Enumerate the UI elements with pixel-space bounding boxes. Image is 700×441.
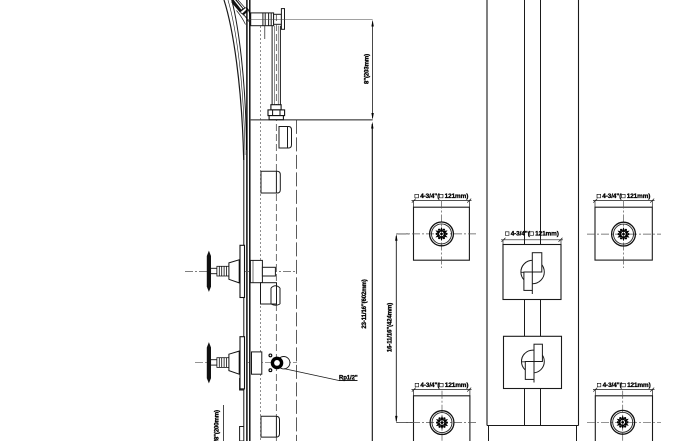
svg-text:23-11/16"(602mm): 23-11/16"(602mm) <box>362 279 368 328</box>
svg-text:16-11/16"(424mm): 16-11/16"(424mm) <box>388 303 394 352</box>
svg-text:□ 4-3/4"(□ 121mm): □ 4-3/4"(□ 121mm) <box>505 231 558 238</box>
svg-text:□ 4-3/4"(□ 121mm): □ 4-3/4"(□ 121mm) <box>597 193 650 200</box>
svg-text:Rp1/2": Rp1/2" <box>339 375 358 381</box>
svg-text:7-7/8"(200mm): 7-7/8"(200mm) <box>215 410 221 441</box>
svg-text:□ 4-3/4"(□ 121mm): □ 4-3/4"(□ 121mm) <box>415 382 468 389</box>
svg-text:8"(203mm): 8"(203mm) <box>365 54 371 84</box>
svg-text:□ 4-3/4"(□ 121mm): □ 4-3/4"(□ 121mm) <box>415 193 468 200</box>
svg-text:□ 4-3/4"(□ 121mm): □ 4-3/4"(□ 121mm) <box>597 382 650 389</box>
